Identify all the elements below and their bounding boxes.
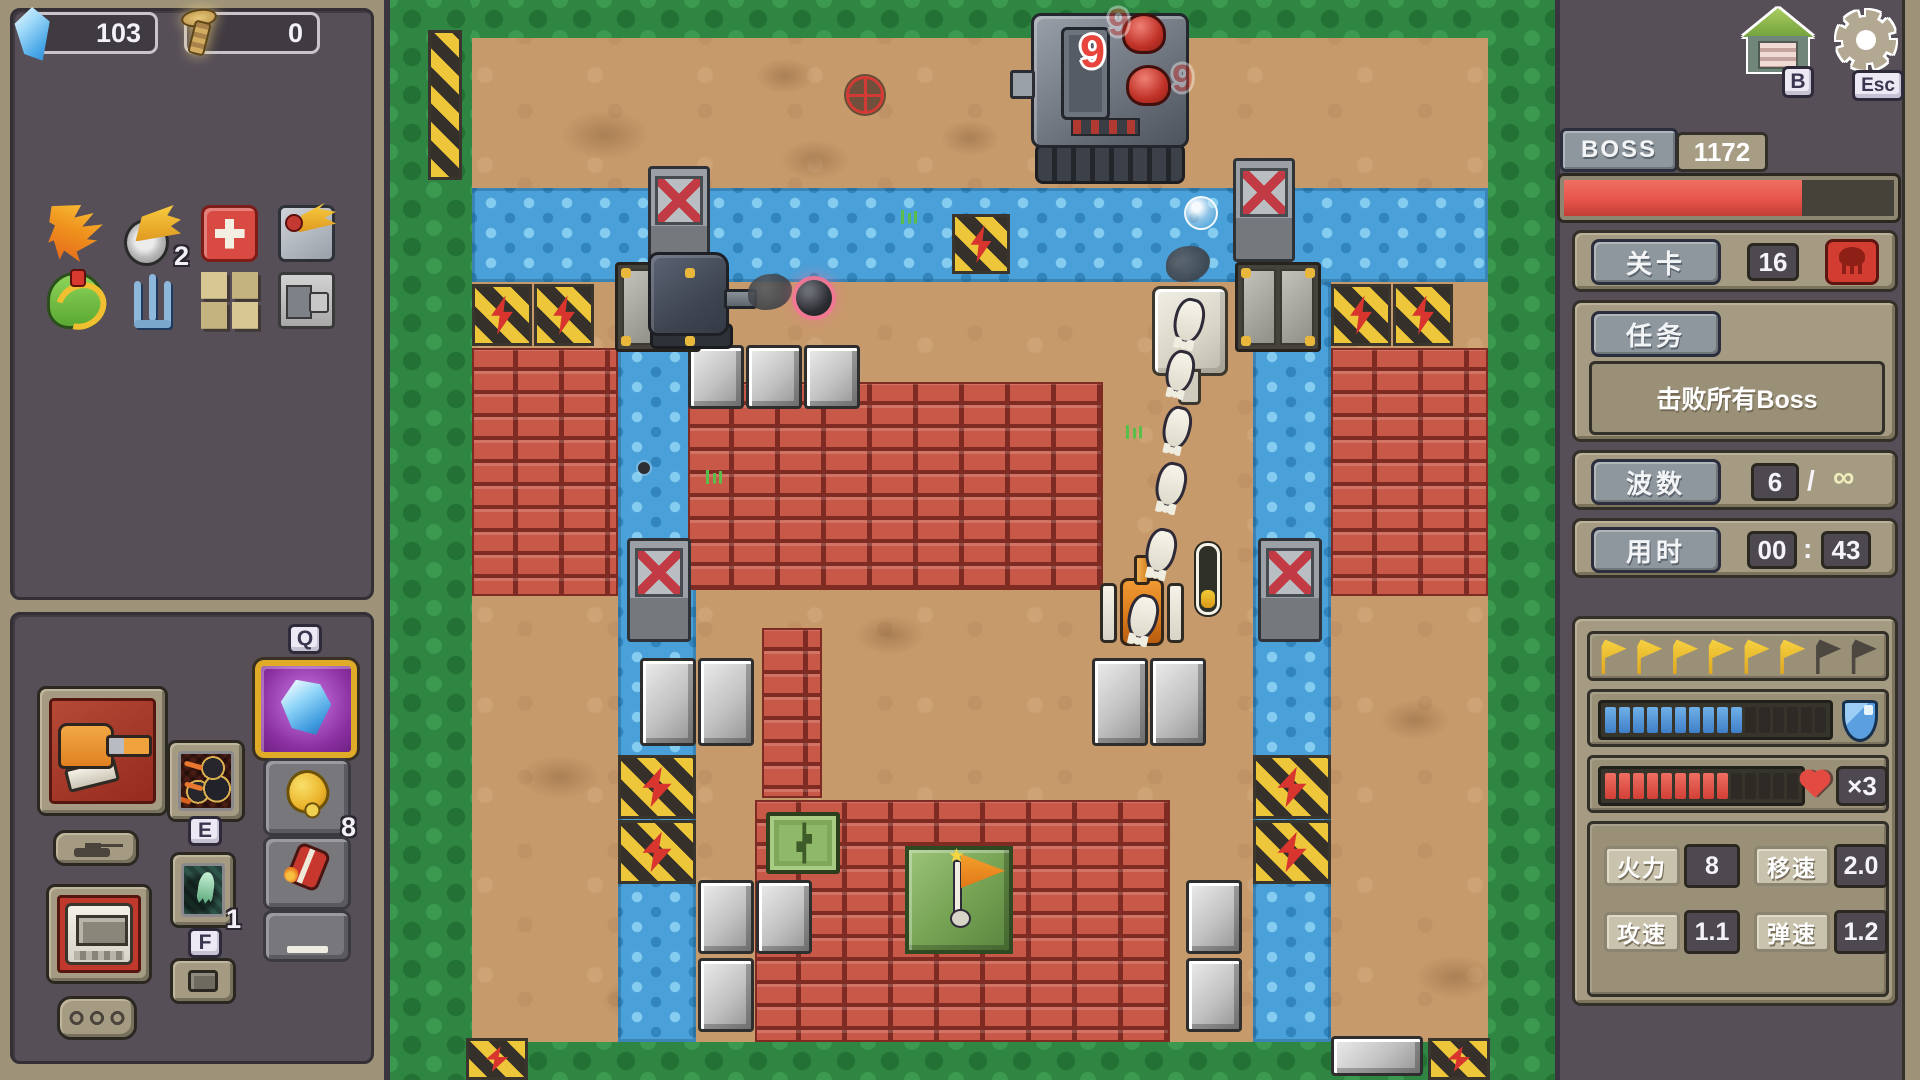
stat-bulletspeed-value: 1.2 — [1834, 910, 1888, 954]
stone — [804, 345, 860, 409]
patch — [755, 58, 815, 94]
tile-blocks-item[interactable] — [201, 272, 258, 329]
bell-item-slot[interactable]: 8 — [263, 758, 351, 836]
water — [1253, 282, 1331, 1042]
key-esc[interactable]: Esc — [1852, 70, 1904, 101]
level-value: 16 — [1747, 243, 1799, 281]
segment — [1661, 707, 1672, 733]
patch — [1380, 700, 1450, 740]
module-icon — [188, 970, 218, 992]
tuft — [1125, 425, 1143, 439]
trident-item[interactable] — [124, 272, 181, 329]
empty-dash-icon — [287, 946, 328, 953]
segment — [1787, 773, 1798, 799]
segment — [1745, 707, 1756, 733]
boss-health-bar — [1560, 176, 1898, 220]
crystal-counter: 103 — [22, 12, 158, 54]
skull-icon[interactable] — [1825, 239, 1879, 285]
wave-total: ∞ — [1833, 461, 1854, 495]
stone — [1150, 658, 1206, 746]
enemy-tank — [648, 252, 752, 350]
cannon-barrel-icon — [106, 735, 152, 757]
boss-health-fill — [1564, 180, 1802, 216]
segment — [1661, 773, 1672, 799]
ghost-count: 1 — [226, 904, 241, 935]
hazard — [618, 820, 696, 884]
wave-separator: / — [1807, 465, 1815, 497]
segment — [1717, 773, 1728, 799]
brick — [688, 382, 1103, 590]
gear-icon — [1836, 10, 1896, 70]
wave-label: 波数 — [1591, 459, 1721, 505]
time-label: 用时 — [1591, 527, 1721, 573]
patch — [780, 140, 850, 180]
armored-box-icon — [65, 903, 133, 965]
wave-panel: 波数 6 / ∞ — [1572, 450, 1898, 510]
level-panel: 关卡 16 — [1572, 230, 1898, 292]
crystal-count: 103 — [96, 18, 141, 49]
red-block-item[interactable] — [201, 205, 258, 262]
shield-track — [1598, 700, 1833, 740]
stat-attackspeed-value: 1.1 — [1684, 910, 1740, 954]
segment — [1801, 707, 1812, 733]
hazard — [466, 1038, 528, 1080]
flag-icon — [1705, 638, 1735, 674]
gate-x — [627, 538, 691, 642]
stat-firepower-label: 火力 — [1604, 846, 1680, 886]
stat-movespeed-value: 2.0 — [1834, 844, 1888, 888]
stat-movespeed-label: 移速 — [1754, 846, 1830, 886]
tuft — [705, 470, 723, 484]
patch — [1415, 955, 1495, 999]
segment — [1703, 707, 1714, 733]
flag-icon — [1634, 638, 1664, 674]
canister-item-slot[interactable] — [263, 836, 351, 910]
damage-number: 9 — [1108, 2, 1129, 45]
hazard — [1428, 1038, 1490, 1080]
segment — [1605, 773, 1616, 799]
mission-label: 任务 — [1591, 311, 1721, 357]
pellet — [638, 462, 650, 474]
brick — [1331, 348, 1488, 596]
ghost-icon — [181, 863, 225, 917]
segment — [1787, 707, 1798, 733]
bullet — [1158, 403, 1195, 452]
hazard — [472, 284, 532, 346]
flag-icon — [1777, 638, 1807, 674]
segment — [1605, 707, 1616, 733]
brick — [472, 348, 618, 596]
key-b[interactable]: B — [1782, 66, 1814, 98]
bolt-count: 0 — [288, 18, 303, 49]
patch — [855, 615, 925, 655]
settings-button[interactable] — [1836, 10, 1896, 70]
module-slot[interactable] — [170, 958, 236, 1004]
stone — [640, 658, 696, 746]
gate-x — [1233, 158, 1295, 262]
segment — [1759, 707, 1770, 733]
brick — [762, 628, 822, 798]
hazard — [952, 214, 1010, 274]
segment — [1675, 707, 1686, 733]
flag-icon — [1741, 638, 1771, 674]
segment — [1619, 773, 1630, 799]
stat-bulletspeed-label: 弹速 — [1754, 912, 1830, 952]
key-q[interactable]: Q — [288, 624, 322, 654]
segment — [1759, 773, 1770, 799]
hazard — [618, 755, 696, 819]
hazard — [428, 30, 462, 180]
gate-x — [1258, 538, 1322, 642]
damage-number: 9 — [1172, 58, 1193, 101]
shield-bar — [1587, 689, 1889, 747]
home-icon — [1742, 8, 1814, 37]
patch — [520, 755, 600, 799]
flag-base — [905, 846, 1013, 954]
fireballs-icon — [178, 751, 234, 811]
empty-item-slot[interactable] — [263, 910, 351, 962]
segment — [1745, 773, 1756, 799]
time-minutes: 00 — [1747, 531, 1797, 569]
status-panel: ×3 火力 8 移速 2.0 攻速 1.1 弹速 1.2 — [1572, 616, 1898, 1006]
patch — [940, 120, 1000, 156]
bullet — [1151, 459, 1191, 511]
turret-part-item[interactable] — [278, 205, 335, 262]
bomb — [796, 280, 832, 316]
smoke — [748, 274, 792, 310]
segment — [1815, 707, 1826, 733]
segment — [1717, 707, 1728, 733]
stone — [698, 880, 754, 954]
hazard — [534, 284, 594, 346]
hazard — [1253, 820, 1331, 884]
segment — [1703, 773, 1714, 799]
flag-icon — [1670, 638, 1700, 674]
tuft — [900, 210, 918, 224]
bolt-counter: 0 — [184, 12, 320, 54]
mission-panel: 任务 击败所有Boss — [1572, 300, 1898, 442]
heart-icon — [1802, 772, 1827, 797]
canister-icon — [284, 841, 332, 893]
gray-module-item[interactable] — [278, 272, 335, 329]
right-sidebar: B Esc BOSS 1172 关卡 16 任务 击败所有Boss 波数 6 /… — [1555, 0, 1920, 1080]
health-track — [1598, 766, 1805, 806]
skill-f-slot[interactable]: 1 — [170, 852, 236, 928]
lives-count: ×3 — [1836, 766, 1888, 806]
armored-box-slot[interactable] — [46, 884, 152, 984]
bolt-icon — [179, 7, 221, 61]
flag-icon — [1598, 638, 1628, 674]
green-rover-item[interactable] — [47, 272, 104, 329]
stat-attackspeed-label: 攻速 — [1604, 912, 1680, 952]
bubble — [1184, 196, 1218, 230]
segment — [1675, 773, 1686, 799]
segment — [1647, 773, 1658, 799]
stone — [756, 880, 812, 954]
crystal-skill-slot[interactable] — [255, 660, 357, 758]
time-seconds: 43 — [1821, 531, 1871, 569]
stone — [746, 345, 802, 409]
hazard — [1393, 284, 1453, 346]
game-field[interactable]: 999 — [390, 0, 1555, 1080]
tank-mode-button[interactable] — [53, 830, 139, 866]
tank-silhouette-icon — [74, 848, 111, 857]
crate — [766, 812, 840, 874]
wave-flags-bar — [1587, 631, 1889, 681]
left-sidebar: 103 0 E 1 F Q 8 — [0, 0, 390, 1080]
flag-icon — [1848, 638, 1878, 674]
segment — [1731, 773, 1742, 799]
stone — [698, 658, 754, 746]
segment — [1633, 773, 1644, 799]
grass — [1488, 0, 1555, 1080]
hazard — [1331, 284, 1391, 346]
damage-number: 9 — [1080, 26, 1105, 78]
winged-wheel-item[interactable]: 2 — [124, 205, 181, 262]
segment — [1619, 707, 1630, 733]
key-f[interactable]: F — [188, 928, 222, 958]
options-circles-button[interactable] — [57, 996, 137, 1040]
base-button[interactable] — [1742, 8, 1814, 72]
mission-text: 击败所有Boss — [1589, 361, 1885, 435]
stone — [1331, 1036, 1423, 1076]
stone — [1092, 658, 1148, 746]
boss-hp-value: 1172 — [1676, 132, 1768, 172]
gem-icon — [281, 680, 331, 735]
segment — [1773, 773, 1784, 799]
wave-current: 6 — [1751, 463, 1799, 501]
stone — [698, 958, 754, 1032]
segment — [1773, 707, 1784, 733]
segment — [1731, 707, 1742, 733]
level-label: 关卡 — [1591, 239, 1721, 285]
segment — [1633, 707, 1644, 733]
stone — [1186, 880, 1242, 954]
item-count: 2 — [174, 241, 189, 272]
stone — [1186, 958, 1242, 1032]
segment — [1689, 707, 1700, 733]
gauge — [1196, 543, 1220, 615]
crosshair — [846, 76, 884, 114]
segment — [1689, 773, 1700, 799]
hazard — [1253, 755, 1331, 819]
time-panel: 用时 00 : 43 — [1572, 518, 1898, 578]
flag-icon — [1813, 638, 1843, 674]
shield-icon — [1842, 700, 1878, 742]
key-e[interactable]: E — [188, 816, 222, 846]
main-weapon-slot[interactable] — [37, 686, 168, 816]
door — [1235, 262, 1321, 352]
grass — [472, 0, 1488, 38]
health-bar: ×3 — [1587, 755, 1889, 813]
boss-label: BOSS — [1560, 128, 1678, 172]
stats-panel: 火力 8 移速 2.0 攻速 1.1 弹速 1.2 — [1587, 821, 1889, 997]
skill-e-slot[interactable] — [167, 740, 245, 822]
segment — [1647, 707, 1658, 733]
time-colon: : — [1803, 533, 1812, 565]
stone — [688, 345, 744, 409]
stat-firepower-value: 8 — [1684, 844, 1740, 888]
bell-icon — [281, 765, 334, 818]
patch — [560, 110, 650, 160]
